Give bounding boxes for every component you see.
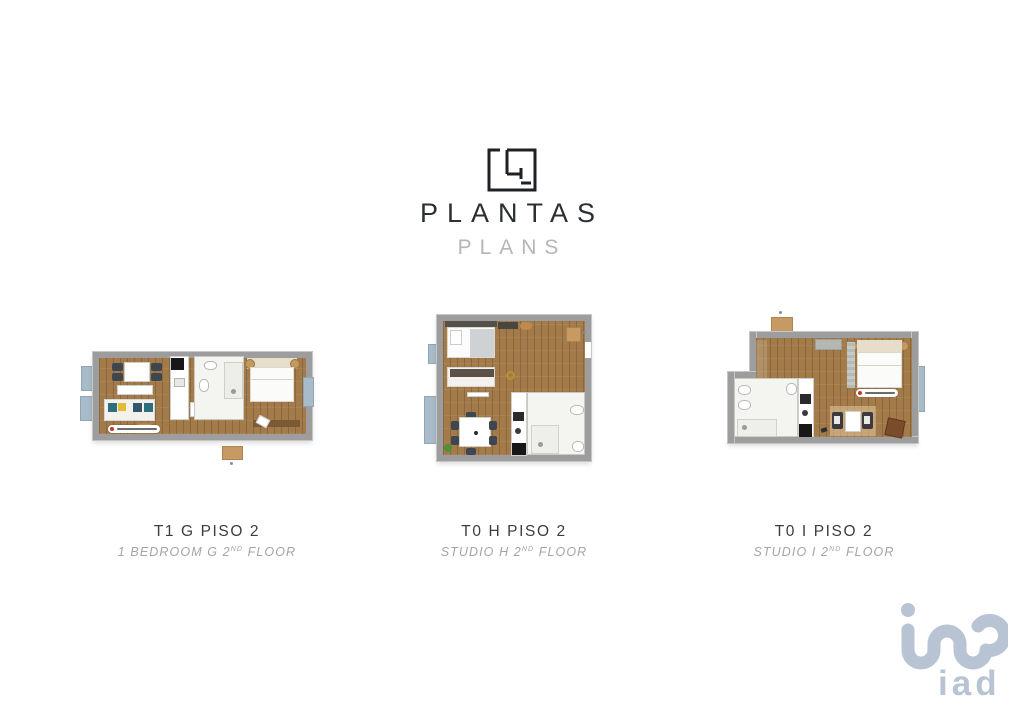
chair	[832, 412, 843, 429]
bed-headboard	[857, 340, 902, 352]
door-step	[566, 327, 581, 342]
rug	[847, 342, 855, 388]
toilet	[199, 379, 209, 392]
door-marker	[230, 462, 233, 465]
burner	[515, 428, 521, 434]
shower	[224, 362, 243, 399]
shower	[737, 419, 777, 437]
chair	[489, 436, 497, 445]
stool	[520, 322, 532, 330]
bed	[447, 327, 495, 358]
sink	[513, 412, 524, 421]
dining-table	[459, 417, 491, 447]
stove	[512, 443, 526, 455]
burner	[802, 410, 808, 416]
floorplan-icon	[487, 148, 537, 192]
chair	[451, 421, 459, 430]
plan-subtitle: STUDIO H 2ND FLOOR	[384, 545, 644, 559]
sofa	[104, 399, 155, 421]
pillow	[133, 403, 142, 412]
staging-badge	[856, 389, 898, 397]
bed	[250, 367, 294, 402]
bathroom	[734, 378, 798, 437]
desk	[117, 385, 153, 395]
mirror	[506, 371, 515, 380]
pillow	[144, 403, 153, 412]
plan-caption-t0-h: T0 H PISO 2 STUDIO H 2ND FLOOR	[384, 523, 644, 559]
staging-badge	[108, 425, 160, 433]
bench	[815, 339, 842, 350]
door-opening	[585, 342, 591, 358]
plan-caption-t1-g: T1 G PISO 2 1 BEDROOM G 2ND FLOOR	[77, 523, 337, 559]
plan-title: T0 I PISO 2	[694, 523, 954, 541]
pillow	[108, 403, 117, 412]
toilet	[572, 441, 584, 452]
page-subtitle: PLANS	[0, 236, 1024, 260]
chair	[151, 373, 162, 381]
plan-subtitle: 1 BEDROOM G 2ND FLOOR	[77, 545, 337, 559]
stove	[799, 424, 812, 437]
sink	[738, 400, 751, 410]
sofa	[447, 367, 495, 387]
sink	[174, 378, 185, 387]
coffee-table	[467, 392, 489, 397]
pillow	[118, 403, 126, 411]
sink	[204, 361, 217, 370]
sink	[570, 405, 584, 415]
chair	[112, 373, 123, 381]
toilet	[786, 383, 797, 395]
floorplan-sheet: PLANTAS PLANS	[0, 0, 1024, 724]
chair	[489, 421, 497, 430]
chair	[862, 412, 873, 429]
chair	[112, 363, 123, 371]
bathroom	[194, 356, 244, 420]
header: PLANTAS PLANS	[0, 148, 1024, 260]
ottoman	[884, 417, 905, 438]
cushion	[450, 369, 494, 377]
dining-table	[845, 411, 861, 432]
outer-wall	[912, 332, 918, 443]
pillow	[450, 330, 462, 345]
stove	[171, 358, 184, 370]
plan-title: T1 G PISO 2	[77, 523, 337, 541]
bed	[857, 352, 902, 388]
dining-table	[124, 362, 150, 382]
door-step	[222, 446, 243, 460]
page-title: PLANTAS	[0, 198, 1024, 229]
sink	[800, 394, 811, 404]
plant	[444, 444, 452, 452]
bathroom	[527, 392, 585, 455]
window	[303, 377, 314, 407]
shower	[531, 425, 559, 454]
door-marker	[583, 331, 586, 334]
chair	[451, 436, 459, 445]
chair	[466, 448, 476, 455]
plan-subtitle: STUDIO I 2ND FLOOR	[694, 545, 954, 559]
plan-title: T0 H PISO 2	[384, 523, 644, 541]
chair	[151, 363, 162, 371]
iad-wordmark: iad	[938, 664, 1001, 704]
console	[498, 322, 518, 329]
door-marker	[779, 311, 782, 314]
blanket	[470, 329, 494, 357]
plan-caption-t0-i: T0 I PISO 2 STUDIO I 2ND FLOOR	[694, 523, 954, 559]
outer-wall	[728, 437, 918, 443]
sink	[738, 385, 751, 395]
